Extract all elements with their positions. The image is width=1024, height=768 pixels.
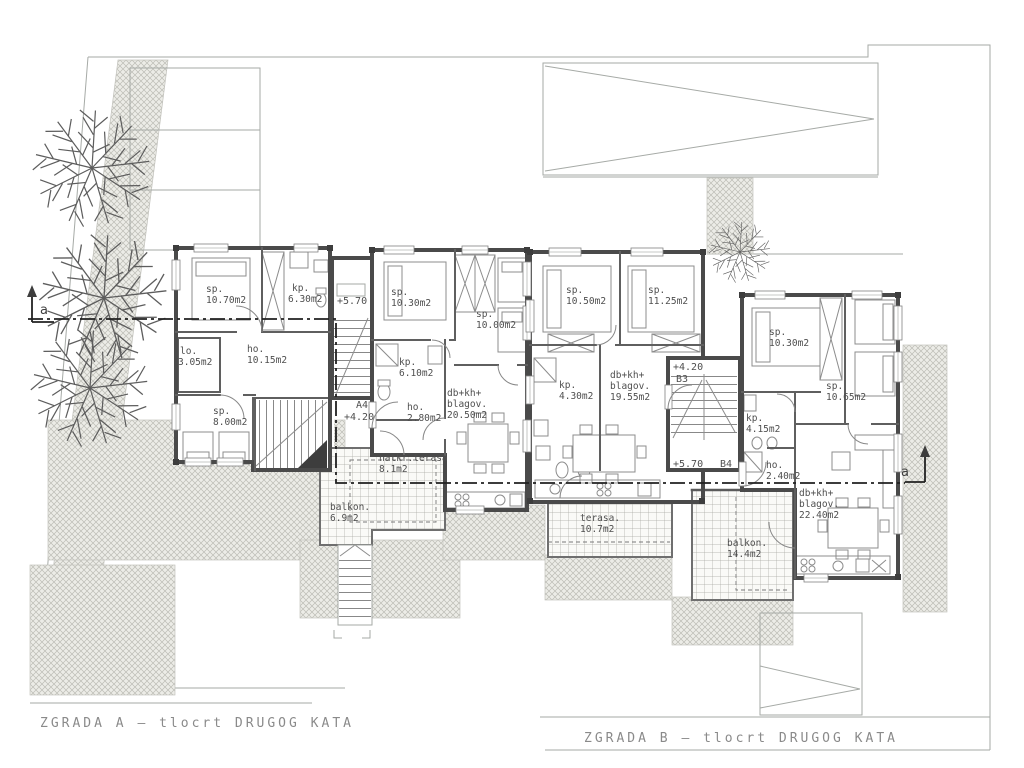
caption-building-a: ZGRADA A – tlocrt DRUGOG KATA: [40, 716, 354, 731]
room-area: 10.15m2: [247, 355, 287, 366]
living-area: 20.50m2: [447, 410, 487, 421]
living-label: blagov.: [610, 381, 650, 392]
room-area: 10.65m2: [826, 392, 866, 403]
level-label: +5.70: [337, 296, 367, 307]
room-label: sp.: [566, 285, 583, 296]
room-label: lo.: [180, 346, 197, 357]
room-label: sp.: [391, 287, 408, 298]
room-area: 6.30m2: [288, 294, 322, 305]
living-label: db+kh+: [610, 370, 645, 381]
room-label: sp.: [826, 381, 843, 392]
room-area: 3.05m2: [178, 357, 212, 368]
living-area: 19.55m2: [610, 392, 650, 403]
living-label: db+kh+: [447, 388, 482, 399]
living-label: db+kh+: [799, 488, 834, 499]
room-label: ho.: [766, 460, 783, 471]
room-area: 4.30m2: [559, 391, 593, 402]
terrace-label: natkr.terasa: [379, 453, 448, 464]
room-label: kp.: [292, 283, 309, 294]
caption-building-b: ZGRADA B – tlocrt DRUGOG KATA: [584, 731, 898, 746]
room-area: 6.10m2: [399, 368, 433, 379]
ramp-north: [543, 63, 878, 177]
balcony-area: 14.4m2: [727, 549, 761, 560]
living-label: blagov.: [799, 499, 839, 510]
terrace-area: 10.7m2: [580, 524, 614, 535]
stair-external-a: [334, 545, 372, 638]
room-area: 4.15m2: [746, 424, 780, 435]
room-label: kp.: [559, 380, 576, 391]
room-label: kp.: [746, 413, 763, 424]
room-area: 8.00m2: [213, 417, 247, 428]
room-label: ho.: [247, 344, 264, 355]
living-label: blagov.: [447, 399, 487, 410]
room-label: sp.: [213, 406, 230, 417]
room-area: 10.70m2: [206, 295, 246, 306]
section-label-right: a: [901, 465, 909, 480]
unit-tag: A4: [356, 400, 368, 411]
room-label: sp.: [769, 327, 786, 338]
level-label: +4.20: [673, 362, 703, 373]
room-label: sp.: [476, 309, 493, 320]
room-area: 10.30m2: [391, 298, 431, 309]
room-area: 2.80m2: [407, 413, 441, 424]
balcony-label: balkon.: [727, 538, 767, 549]
room-area: 10.50m2: [566, 296, 606, 307]
room-area: 2.40m2: [766, 471, 800, 482]
living-area: 22.40m2: [799, 510, 839, 521]
balcony-area: 6.9m2: [330, 513, 359, 524]
captions: ZGRADA A – tlocrt DRUGOG KATA ZGRADA B –…: [40, 716, 898, 746]
room-label: sp.: [648, 285, 665, 296]
stair-a3-internal: [253, 398, 330, 470]
room-area: 10.30m2: [769, 338, 809, 349]
unit-tag: B4: [720, 459, 732, 470]
terrace-area: 8.1m2: [379, 464, 408, 475]
room-label: sp.: [206, 284, 223, 295]
room-label: kp.: [399, 357, 416, 368]
floor-plan-canvas: a a sp. 10.70m2 kp. 6.30m2 lo. 3.05m2 ho…: [0, 0, 1024, 768]
room-area: 10.00m2: [476, 320, 516, 331]
level-label: +4.20: [344, 412, 374, 423]
room-area: 11.25m2: [648, 296, 688, 307]
terrace-label: terasa.: [580, 513, 620, 524]
section-label-left: a: [40, 303, 48, 318]
unit-tag: B3: [676, 374, 688, 385]
room-label: ho.: [407, 402, 424, 413]
floor-plan-svg: a a sp. 10.70m2 kp. 6.30m2 lo. 3.05m2 ho…: [0, 0, 1024, 768]
balcony-label: balkon.: [330, 502, 370, 513]
level-label: +5.70: [673, 459, 703, 470]
